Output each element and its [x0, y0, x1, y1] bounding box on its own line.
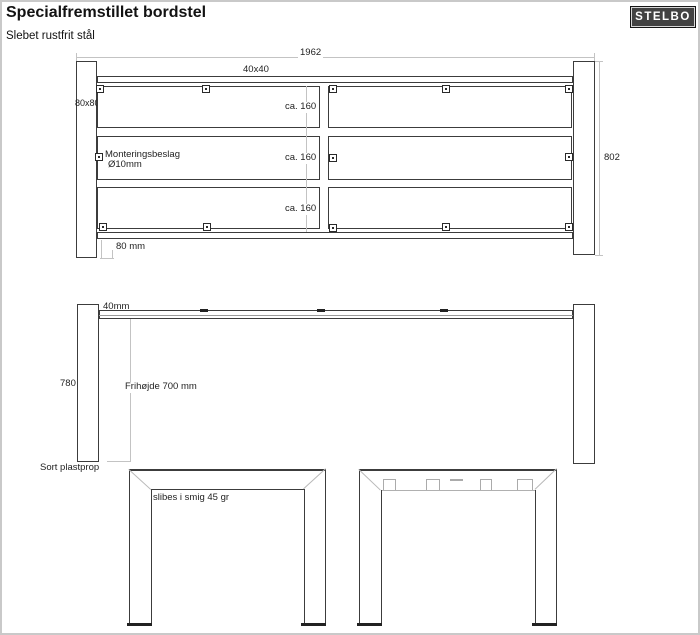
- frame-inner-edge: [151, 489, 304, 490]
- table-leg-left: [76, 61, 97, 258]
- foot-note: Sort plastprop: [40, 463, 99, 474]
- dimension-tick: [107, 461, 131, 462]
- mounting-bracket-icon: [202, 85, 210, 93]
- dimension-tick: [595, 61, 603, 62]
- mounting-bracket-icon: [329, 224, 337, 232]
- dimension-780: 780: [60, 379, 76, 390]
- mounting-bracket-icon: [96, 85, 104, 93]
- plastic-foot: [127, 623, 152, 626]
- dimension-80x80: 80x80: [75, 98, 100, 108]
- dimension-line-802: [599, 61, 600, 255]
- dimension-40x40: 40x40: [243, 65, 269, 76]
- bracket-dash-icon: [450, 479, 463, 481]
- bracket-socket-icon: [426, 479, 440, 490]
- dimension-1962: 1962: [298, 48, 323, 59]
- miter-note: slibes i smig 45 gr: [153, 493, 229, 504]
- spacing-label-1: ca. 160: [283, 102, 318, 113]
- bracket-socket-icon: [480, 479, 492, 490]
- frame-inner-edge: [381, 490, 535, 491]
- dimension-tick: [595, 255, 603, 256]
- miter-line: [535, 468, 557, 489]
- spacing-label-2: ca. 160: [283, 153, 318, 164]
- frame-panel: [328, 187, 572, 229]
- leg-outer-edge: [325, 469, 326, 624]
- frame-top-edge: [359, 469, 557, 471]
- dimension-line-80mm: [100, 258, 114, 259]
- frame-panel: [328, 136, 572, 180]
- table-leg-right: [573, 61, 595, 255]
- leg-inner-edge: [535, 490, 536, 624]
- page-title: Specialfremstillet bordstel: [6, 4, 206, 22]
- plastic-foot: [301, 623, 326, 626]
- mounting-bracket-icon: [329, 85, 337, 93]
- leg-outer-edge: [129, 469, 130, 624]
- dimension-line-1962: [76, 57, 594, 58]
- bracket-tick-icon: [440, 309, 448, 312]
- bracket-tick-icon: [200, 309, 208, 312]
- top-rail: [97, 76, 573, 83]
- plastic-foot: [357, 623, 382, 626]
- leg-inner-edge: [304, 489, 305, 624]
- mounting-bracket-icon: [99, 223, 107, 231]
- mounting-bracket-icon: [95, 153, 103, 161]
- mounting-bracket-icon: [565, 223, 573, 231]
- mounting-bracket-icon: [442, 223, 450, 231]
- table-leg-left: [77, 304, 99, 462]
- dimension-40mm: 40mm: [103, 302, 129, 313]
- mounting-bracket-icon: [329, 154, 337, 162]
- leg-outer-edge: [556, 469, 557, 624]
- dimension-tick: [101, 240, 102, 259]
- clearance-note: Frihøjde 700 mm: [123, 382, 199, 393]
- dimension-tick: [594, 53, 595, 61]
- rail-inner-line: [99, 315, 573, 316]
- miter-line: [358, 469, 380, 490]
- leg-inner-edge: [381, 490, 382, 624]
- stelbo-logo: STELBO: [630, 6, 696, 28]
- mounting-bracket-icon: [565, 85, 573, 93]
- mounting-bracket-icon: [203, 223, 211, 231]
- spacing-label-3: ca. 160: [283, 204, 318, 215]
- dimension-tick: [76, 53, 77, 61]
- page-subtitle: Slebet rustfrit stål: [6, 30, 95, 42]
- bottom-rail: [97, 232, 573, 239]
- drawing-page: Specialfremstillet bordstel Slebet rustf…: [0, 0, 700, 635]
- bracket-note-line2: Ø10mm: [108, 160, 142, 171]
- bracket-tick-icon: [317, 309, 325, 312]
- leg-outer-edge: [359, 469, 360, 624]
- bracket-socket-icon: [383, 479, 396, 490]
- miter-line: [128, 469, 151, 490]
- dimension-802: 802: [602, 153, 622, 164]
- table-leg-right: [573, 304, 595, 464]
- miter-line: [303, 468, 326, 489]
- frame-panel: [328, 86, 572, 128]
- plastic-foot: [532, 623, 557, 626]
- bracket-socket-icon: [517, 479, 533, 490]
- frame-top-edge: [129, 469, 326, 471]
- dimension-80mm: 80 mm: [116, 242, 145, 253]
- mounting-bracket-icon: [565, 153, 573, 161]
- mounting-bracket-icon: [442, 85, 450, 93]
- leg-inner-edge: [151, 489, 152, 624]
